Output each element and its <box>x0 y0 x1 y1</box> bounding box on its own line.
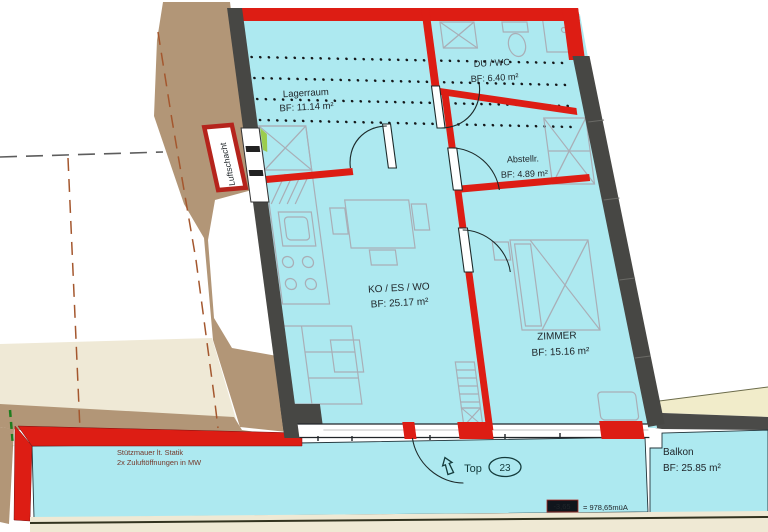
svg-text:BF: 25.85 m²: BF: 25.85 m² <box>663 463 721 474</box>
svg-text:ZIMMER: ZIMMER <box>537 330 577 342</box>
svg-text:Top: Top <box>464 463 482 475</box>
pier-red-1 <box>402 422 416 439</box>
svg-text:= 978,65müA: = 978,65müA <box>583 503 628 512</box>
glass-front-wall <box>297 421 649 439</box>
svg-text:DU / WC: DU / WC <box>473 57 510 69</box>
terrain-tan-corner <box>0 427 14 524</box>
svg-text:BF: 15.16 m²: BF: 15.16 m² <box>531 346 590 359</box>
svg-text:2x Zuluftöffnungen in MW: 2x Zuluftöffnungen in MW <box>117 458 201 467</box>
pier-red-3 <box>599 421 644 439</box>
svg-text:Stützmauer lt. Statik: Stützmauer lt. Statik <box>117 448 183 457</box>
top-wall-red <box>231 8 580 21</box>
svg-text:23: 23 <box>499 463 511 474</box>
svg-text:Abstellr.: Abstellr. <box>507 153 539 164</box>
svg-text:Balkon: Balkon <box>663 447 694 458</box>
svg-text:-3,65: -3,65 <box>553 502 570 511</box>
gray-dashed-line <box>0 152 163 157</box>
svg-text:BF: 4.89 m²: BF: 4.89 m² <box>501 168 548 180</box>
floor-plan-svg: Luftschacht Lagerraum BF: 11.14 m² DU / … <box>0 0 768 532</box>
apartment-floor <box>240 12 658 428</box>
